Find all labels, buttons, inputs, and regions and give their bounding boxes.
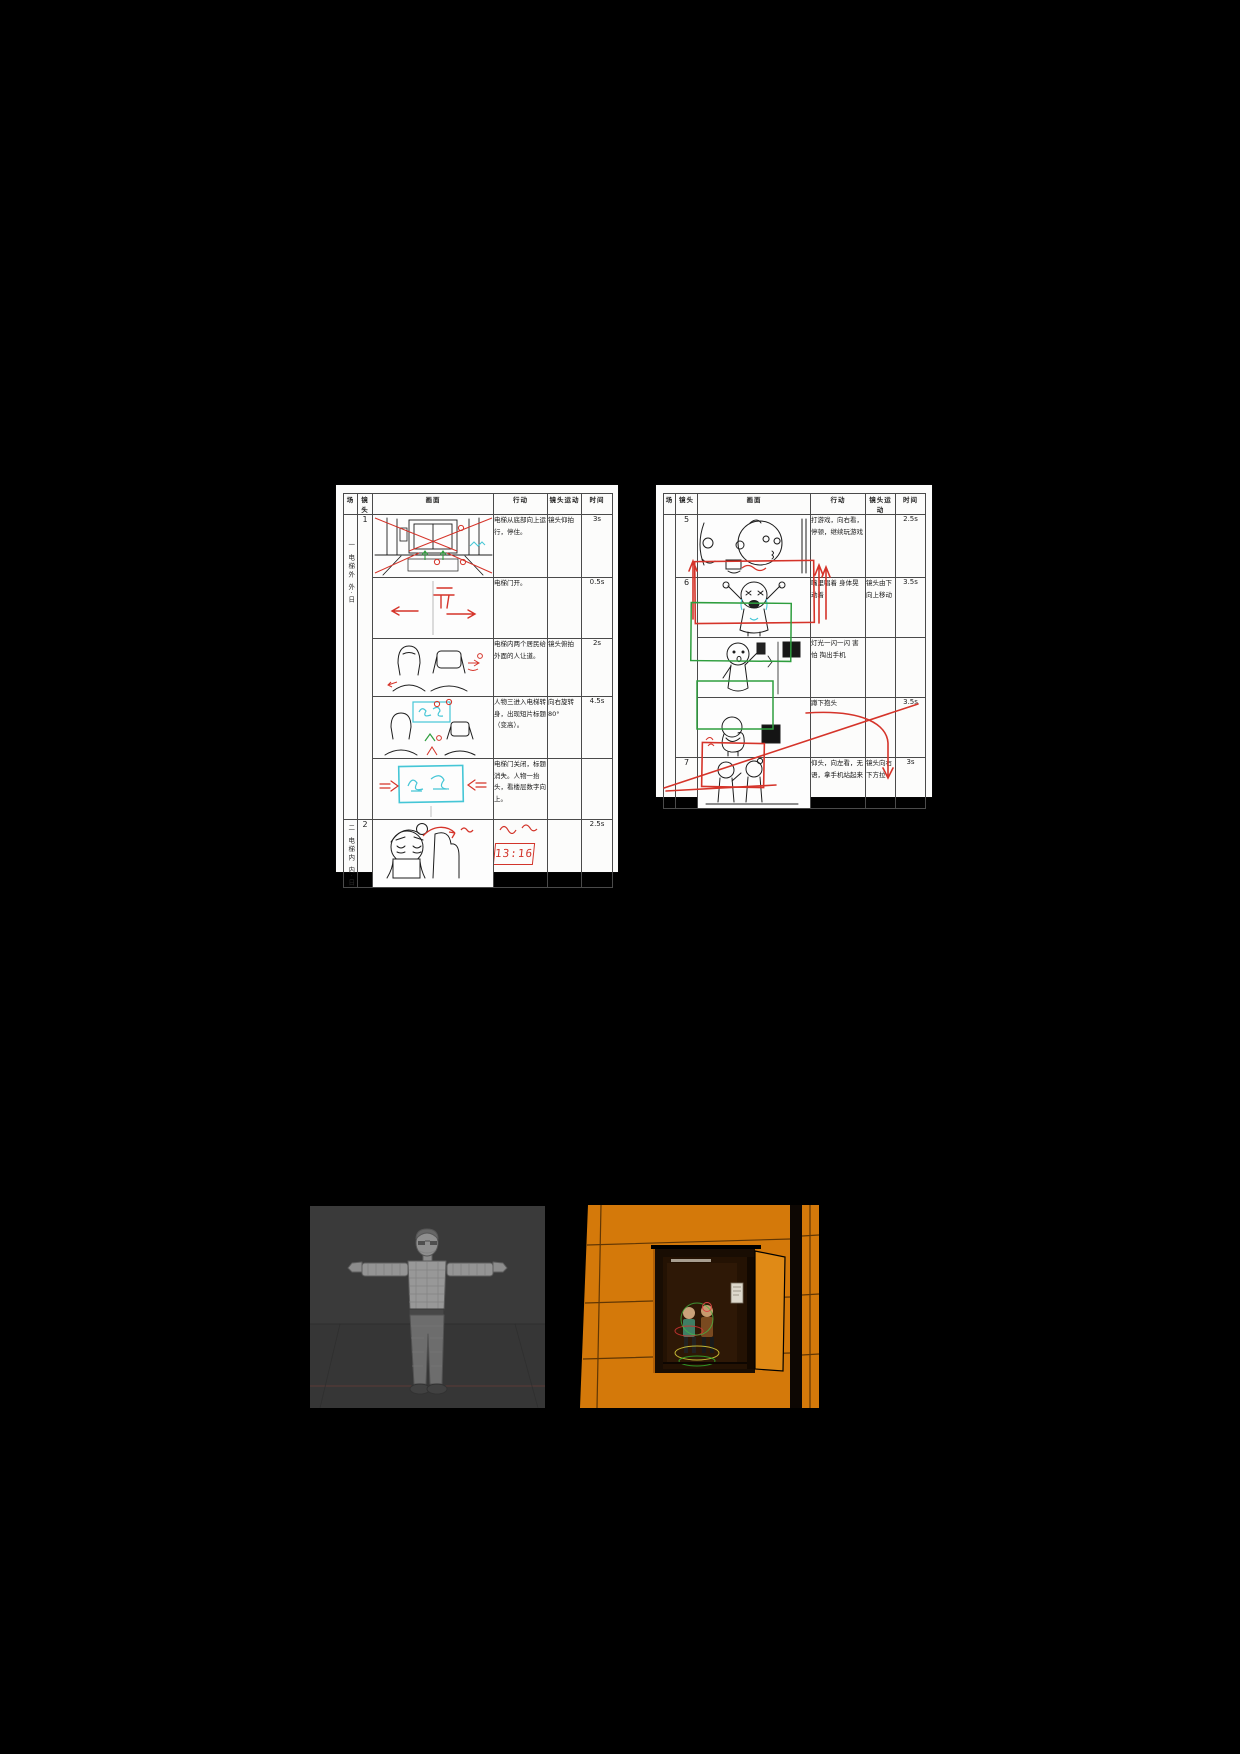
col-header-action: 行动 <box>811 494 866 515</box>
camera-move-text: 镜头向右下方拉 <box>866 758 896 809</box>
action-text: 电梯内两个居民给外面的人让道。 <box>494 639 548 697</box>
duration-text <box>896 638 926 698</box>
duration-text: 3.5s <box>896 698 926 758</box>
table-row: 电梯门开。 0.5s <box>344 578 613 639</box>
sketch-scared-phone <box>698 638 811 698</box>
action-text-red: 打游戏，向右看，停顿，继续玩游戏 <box>811 515 866 578</box>
action-cell-with-display: 13:16 <box>494 820 548 888</box>
camera-move-text <box>548 759 582 820</box>
action-text: 电梯门开。 <box>494 578 548 639</box>
table-row: 5 <box>664 515 926 578</box>
action-text: 灯光一闪一闪 害怕 掏出手机 <box>811 638 866 698</box>
sketch-two-residents <box>373 639 494 697</box>
action-text: 蹲下抱头 <box>811 698 866 758</box>
col-header-camera-move: 镜头运动 <box>548 494 582 515</box>
scene-label-cell: 一 电梯外 外·日 <box>344 515 358 820</box>
shot-number: 6 <box>676 578 698 758</box>
character-model-viewport <box>310 1206 545 1408</box>
red-clock-display: 13:16 <box>494 843 536 865</box>
duration-text: 3.5s <box>896 578 926 638</box>
col-header-time: 时间 <box>896 494 926 515</box>
table-row: 电梯内两个居民给外面的人让道。 镜头俯拍 2s <box>344 639 613 697</box>
table-row: 蹲下抱头 3.5s <box>664 698 926 758</box>
scene-label-cell <box>664 515 676 809</box>
camera-move-text: 向右旋转 80° <box>548 697 582 759</box>
sketch-crying-singing <box>698 578 811 638</box>
camera-move-text <box>548 578 582 639</box>
action-text: 嘴里唱着 身体晃动着 <box>811 578 866 638</box>
storyboard-page-1: 场 镜头 画面 行动 镜头运动 时间 一 电梯外 外·日 1 <box>336 485 618 872</box>
duration-text: 2s <box>582 639 613 697</box>
camera-move-text: 镜头俯拍 <box>548 639 582 697</box>
duration-text: 4.5s <box>582 697 613 759</box>
duration-text: 2.5s <box>896 515 926 578</box>
sketch-door-open <box>373 578 494 639</box>
shot-number: 1 <box>358 515 373 820</box>
table-row: 电梯门关闭，标题消失。人物一抬头，看楼层数字向上。 <box>344 759 613 820</box>
sketch-two-standing <box>698 758 811 809</box>
col-header-scene: 场 <box>664 494 676 515</box>
shot-number: 7 <box>676 758 698 809</box>
duration-text: 0.5s <box>582 578 613 639</box>
sketch-squatting <box>698 698 811 758</box>
sketch-playing-game <box>698 515 811 578</box>
sketch-tired-woman <box>373 820 494 888</box>
table-row: 灯光一闪一闪 害怕 掏出手机 <box>664 638 926 698</box>
col-header-picture: 画面 <box>698 494 811 515</box>
action-text: 仰头，向左看，无语，拿手机站起来 <box>811 758 866 809</box>
table-row: 6 嘴里唱着 身体晃动着 镜头由下向上移动 <box>664 578 926 638</box>
elevator-panel-sign <box>731 1283 743 1303</box>
open-elevator-door <box>755 1251 785 1371</box>
col-header-time: 时间 <box>582 494 613 515</box>
shot-number: 5 <box>676 515 698 578</box>
camera-move-text: 镜头由下向上移动 <box>866 578 896 638</box>
col-header-scene: 场 <box>344 494 358 515</box>
col-header-shot: 镜头 <box>358 494 373 515</box>
sketch-title-card <box>373 759 494 820</box>
camera-move-text <box>866 698 896 758</box>
camera-move-text: 镜头仰拍 <box>548 515 582 578</box>
col-header-shot: 镜头 <box>676 494 698 515</box>
sketch-elevator-exterior <box>373 515 494 578</box>
col-header-picture: 画面 <box>373 494 494 515</box>
header-row: 场 镜头 画面 行动 镜头运动 时间 <box>344 494 613 515</box>
action-text: 电梯门关闭，标题消失。人物一抬头，看楼层数字向上。 <box>494 759 548 820</box>
sketch-title-appears <box>373 697 494 759</box>
table-row: 7 仰头，向左看，无语，拿手机站起来 镜头向右下方拉 3s <box>664 758 926 809</box>
duration-text: 3s <box>582 515 613 578</box>
shot-number: 2 <box>358 820 373 888</box>
storyboard-table-1: 场 镜头 画面 行动 镜头运动 时间 一 电梯外 外·日 1 <box>343 493 613 888</box>
scene-1-label: 一 电梯外 外·日 <box>347 541 354 604</box>
col-header-action: 行动 <box>494 494 548 515</box>
duration-text: 3s <box>896 758 926 809</box>
red-scribble <box>494 820 542 834</box>
duration-text <box>582 759 613 820</box>
col-header-camera-move: 镜头运动 <box>866 494 896 515</box>
elevator-render-viewport <box>571 1205 819 1408</box>
scene-2-label: 二 电梯内 内·日 <box>347 824 354 887</box>
action-text: 人物三进入电梯转身，出现短片标题（变高）。 <box>494 697 548 759</box>
table-row: 人物三进入电梯转身，出现短片标题（变高）。 向右旋转 80° 4.5s <box>344 697 613 759</box>
table-row: 二 电梯内 内·日 2 <box>344 820 613 888</box>
header-row: 场 镜头 画面 行动 镜头运动 时间 <box>664 494 926 515</box>
action-text: 电梯从底部向上运行，停住。 <box>494 515 548 578</box>
camera-move-text <box>866 515 896 578</box>
scene-label-cell: 二 电梯内 内·日 <box>344 820 358 888</box>
camera-move-text <box>866 638 896 698</box>
table-row: 一 电梯外 外·日 1 <box>344 515 613 578</box>
camera-move-text <box>548 820 582 888</box>
storyboard-page-2: 场 镜头 画面 行动 镜头运动 时间 5 <box>656 485 932 797</box>
storyboard-table-2: 场 镜头 画面 行动 镜头运动 时间 5 <box>663 493 926 809</box>
duration-text: 2.5s <box>582 820 613 888</box>
